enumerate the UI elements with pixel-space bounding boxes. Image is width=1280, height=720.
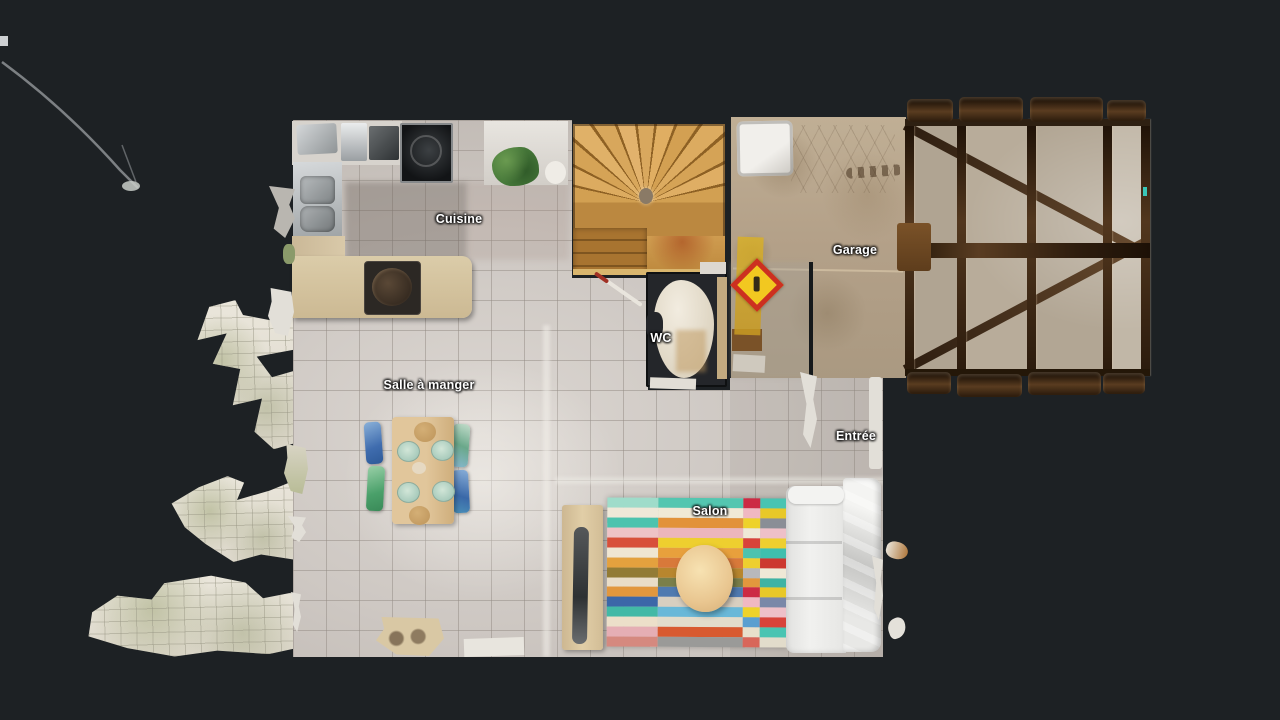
rug-stripe <box>607 498 658 508</box>
rug-stripe <box>743 528 760 538</box>
coffee-table <box>676 545 733 612</box>
truss-shadow-lines <box>791 125 895 193</box>
paving-fragment-lower <box>87 573 303 659</box>
rug-stripe <box>658 518 743 528</box>
rug-stripe <box>760 628 788 638</box>
wc-door-cap <box>650 377 696 390</box>
kettle <box>545 161 566 184</box>
rug-stripe <box>743 538 760 548</box>
rug-stripe <box>607 627 658 637</box>
rug-stripe <box>658 627 743 637</box>
wc-wall <box>717 277 727 379</box>
plant-fragment <box>283 244 295 264</box>
rug-stripe <box>760 528 788 538</box>
tv-panel <box>572 527 589 644</box>
rug-stripe <box>760 558 788 568</box>
rug-stripe <box>760 508 788 518</box>
rug-stripe <box>607 537 658 547</box>
table-stool-top <box>414 422 436 442</box>
kitchen-appliance-steel <box>341 123 367 161</box>
rug-stripe <box>743 598 760 608</box>
scan-artifact-speck <box>0 36 8 46</box>
sign-pictogram <box>754 276 760 291</box>
rug-stripe <box>743 518 760 528</box>
room-label-garage[interactable]: Garage <box>833 243 877 257</box>
rug-stripe <box>658 528 743 538</box>
table-stool-bottom <box>409 506 430 525</box>
stove-top <box>400 123 453 183</box>
scan-fragment <box>464 637 525 657</box>
rug-stripe <box>760 518 788 528</box>
dining-chair <box>366 466 385 512</box>
rug-stripe <box>658 617 743 627</box>
room-label-wc[interactable]: WC <box>650 331 671 345</box>
garage-roof-structure <box>905 119 1150 376</box>
rug-stripe <box>607 597 658 607</box>
kitchen-appliance-dark <box>369 126 399 160</box>
rug-stripe <box>760 618 788 628</box>
sink-bowl <box>300 176 335 204</box>
sofa-seat <box>786 486 846 653</box>
floorplan-viewer-canvas[interactable]: CuisineGarageWCSalle à mangerEntréeSalon <box>0 0 1280 720</box>
spiral-staircase <box>573 124 725 275</box>
sofa-cushion-seam <box>786 541 842 544</box>
rug-stripe <box>607 567 658 577</box>
sink-bowl <box>300 206 335 232</box>
rug-column-3 <box>760 498 789 647</box>
rafter-tail <box>907 372 951 394</box>
wall-gap <box>809 262 813 378</box>
room-label-salle-a-manger[interactable]: Salle à manger <box>383 378 474 392</box>
paving-fragment-middle <box>171 474 299 563</box>
rug-stripe <box>607 547 658 557</box>
kitchen-sink-unit <box>293 162 342 237</box>
plate <box>432 481 455 502</box>
roof-diagonal-beam <box>903 122 1149 259</box>
rug-column-2 <box>743 498 761 647</box>
entry-wall-cap <box>869 377 882 469</box>
rafter-tail <box>907 99 953 122</box>
plywood-patch <box>897 223 931 271</box>
garage-shelf-items <box>733 354 766 373</box>
rug-stripe <box>743 568 760 578</box>
plate <box>397 482 420 503</box>
rafter-tail <box>959 97 1023 122</box>
rug-stripe <box>607 527 658 537</box>
wall-cap <box>269 186 295 238</box>
rug-stripe <box>760 598 788 608</box>
dining-chair <box>364 421 384 464</box>
room-label-entree[interactable]: Entrée <box>836 429 876 443</box>
rafter-tail <box>957 374 1022 397</box>
wall-cap <box>700 262 726 274</box>
island-cooktop <box>364 261 421 315</box>
rug-stripe <box>658 637 743 647</box>
floor-light-seam-horizontal <box>555 477 883 484</box>
rug-stripe <box>743 617 760 627</box>
scan-color-speck <box>1143 187 1147 196</box>
rug-stripe <box>760 548 788 558</box>
rug-stripe <box>607 517 658 527</box>
rug-stripe <box>743 608 760 618</box>
rafter-tail <box>1107 100 1146 121</box>
storage-box <box>737 121 794 177</box>
scan-fragment <box>885 616 909 641</box>
staircase-lower-steps <box>573 228 647 275</box>
floor-light-seam-vertical <box>543 325 550 657</box>
rug-stripe <box>760 588 788 598</box>
rafter-tail <box>1103 373 1145 394</box>
rug-stripe <box>743 558 760 568</box>
wc-floor-patch <box>676 330 706 372</box>
rug-stripe <box>743 508 760 518</box>
rug-stripe <box>607 587 658 597</box>
plate <box>397 441 420 462</box>
rug-stripe <box>760 498 788 508</box>
rafter-tail <box>1030 97 1103 122</box>
wc-room <box>646 272 727 387</box>
garage-floor <box>731 117 906 378</box>
room-label-cuisine[interactable]: Cuisine <box>436 212 483 226</box>
rug-stripe <box>607 637 658 647</box>
room-label-salon[interactable]: Salon <box>692 504 727 518</box>
rug-stripe <box>743 637 760 647</box>
rug-stripe <box>743 548 760 558</box>
rug-stripe <box>743 498 760 508</box>
rug-stripe <box>607 507 658 517</box>
scan-artifact-line <box>0 30 170 205</box>
roof-cross-beam <box>905 243 1150 258</box>
rug-stripe <box>607 577 658 587</box>
rug-stripe <box>760 637 788 647</box>
plate <box>431 440 454 461</box>
rug-column-0 <box>607 498 659 647</box>
rug-stripe <box>607 617 658 627</box>
staircase-newel <box>639 188 653 204</box>
rug-stripe <box>760 568 788 578</box>
scan-fragment <box>884 539 910 561</box>
sofa-armrest <box>788 486 844 504</box>
rug-stripe <box>760 608 788 618</box>
rug-stripe <box>743 588 760 598</box>
rug-stripe <box>607 607 658 617</box>
rug-stripe <box>760 538 788 548</box>
rug-stripe <box>760 578 788 588</box>
rug-stripe <box>607 557 658 567</box>
rug-stripe <box>743 578 760 588</box>
table-centerpiece <box>412 462 426 474</box>
kitchen-appliance-silver <box>296 123 338 155</box>
cooking-pan <box>372 268 412 306</box>
potted-plant <box>492 147 539 186</box>
sofa-cushion-seam <box>786 597 842 600</box>
rafter-tail <box>1028 372 1101 395</box>
rug-stripe <box>743 627 760 637</box>
stove-burner <box>410 135 442 167</box>
